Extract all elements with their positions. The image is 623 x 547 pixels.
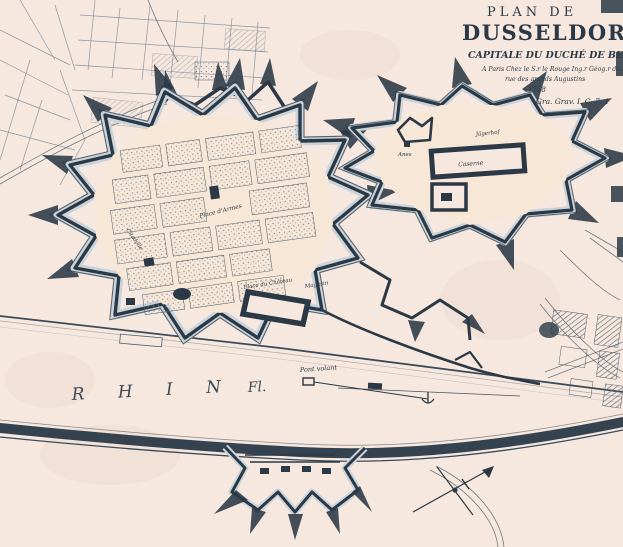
map-page: R H I N Fl. Pont volant xyxy=(0,0,623,547)
ferry-label: Pont volant xyxy=(299,363,338,374)
map-canvas: R H I N Fl. Pont volant xyxy=(0,0,623,547)
compass-icon xyxy=(413,466,494,515)
castle-outline xyxy=(243,292,308,324)
church2-icon xyxy=(173,288,191,300)
anes-label: Anes xyxy=(397,152,412,158)
ferry-boat-icon xyxy=(303,378,314,385)
anchor-icon xyxy=(422,392,434,403)
year-label: 1758 xyxy=(528,86,546,94)
rhine-river: R H I N Fl. xyxy=(0,316,623,461)
ferry-boat2-icon xyxy=(368,383,382,390)
map-series-title: PLAN DE xyxy=(487,5,577,20)
bridgehead-fort xyxy=(214,447,504,547)
map-subtitle: CAPITALE DU DUCHÉ DE BERG xyxy=(468,49,623,61)
church-icon xyxy=(209,185,220,199)
title-cartouche: PLAN DE DUSSELDORP. CAPITALE DU DUCHÉ DE… xyxy=(462,5,623,106)
address-line: rue des grands Augustins xyxy=(505,76,585,83)
river-suffix-label: Fl. xyxy=(246,379,266,396)
city-fortress: Place d'Armes Place du Château Magasin C… xyxy=(28,58,398,344)
river-name-label: R H I N xyxy=(70,376,235,405)
imprint-line: A Paris Chez le S.r le Rouge Ing.r Géog.… xyxy=(481,66,623,73)
map-title: DUSSELDORP. xyxy=(462,20,623,45)
plate-mark: Gra. Grav. I. C. 7. 1 xyxy=(536,97,609,106)
